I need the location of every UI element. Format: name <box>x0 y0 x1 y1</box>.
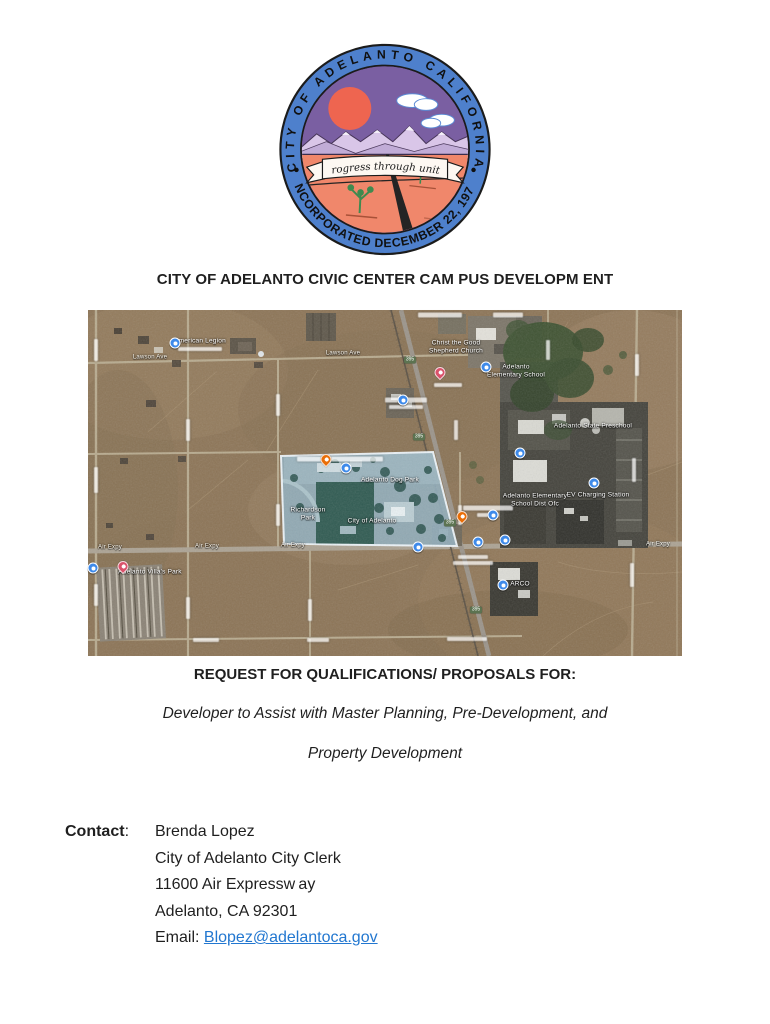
map-label: School Dist Ofc <box>511 501 559 508</box>
map-label: Richardson <box>291 507 326 514</box>
pink-map-pin <box>432 365 448 381</box>
blue-map-pin <box>88 563 99 574</box>
map-label-smudge <box>186 597 190 619</box>
map-label: American Legion <box>174 338 226 345</box>
map-label-smudge <box>630 563 634 587</box>
map-label-smudge <box>493 313 523 318</box>
contact-name: Brenda Lopez <box>155 819 378 846</box>
contact-email-row: Email: Blopez@adelantoca.gov <box>155 925 378 952</box>
contact-label: Contact: <box>65 819 155 952</box>
blue-map-pin <box>589 478 600 489</box>
map-label-smudge <box>193 638 219 642</box>
map-label-smudge <box>94 584 98 606</box>
map-label-smudge <box>447 637 487 641</box>
contact-block: Contact: Brenda Lopez City of Adelanto C… <box>65 819 378 952</box>
map-label: Lawson Ave <box>326 351 360 358</box>
map-label-smudge <box>276 504 280 526</box>
map-label: Adelanto Dog Park <box>361 477 419 484</box>
blue-map-pin <box>473 537 484 548</box>
subtitle-line-1: Developer to Assist with Master Planning… <box>0 705 770 723</box>
map-label-smudge <box>276 394 280 416</box>
map-label-smudge <box>546 340 550 360</box>
map-label-smudge <box>94 339 98 361</box>
request-heading: REQUEST FOR QUALIFICATIONS/ PROPOSALS FO… <box>0 666 770 683</box>
contact-email-link[interactable]: Blopez@adelantoca.gov <box>204 929 378 946</box>
map-label: City of Adelanto <box>348 518 397 525</box>
map-label: Adelanto <box>502 364 529 371</box>
blue-map-pin <box>398 395 409 406</box>
route-shield: 395 <box>444 520 456 527</box>
contact-title: City of Adelanto City Clerk <box>155 846 378 873</box>
contact-email-label: Email: <box>155 929 199 946</box>
contact-city: Adelanto, CA 92301 <box>155 899 378 926</box>
map-label-smudge <box>186 419 190 441</box>
map-label: EV Charging Station <box>567 492 630 499</box>
blue-map-pin <box>498 580 509 591</box>
map-label: Adelanto State Preschool <box>554 423 632 430</box>
blue-map-pin <box>481 362 492 373</box>
map-label: Shepherd Church <box>429 348 483 355</box>
map-label-smudge <box>632 458 636 482</box>
map-label-smudge <box>434 383 462 387</box>
blue-map-pin <box>170 338 181 349</box>
document-page: “Progress through unity” CITY OF ADELANT… <box>0 0 770 1024</box>
map-label-smudge <box>458 555 488 559</box>
map-label: Adelanto Elementary <box>503 493 567 500</box>
route-shield: 395 <box>404 357 416 364</box>
orange-map-pin <box>454 509 470 525</box>
orange-map-pin <box>318 452 334 468</box>
map-label-overlay: 395395395395American LegionLawson AveLaw… <box>88 310 682 656</box>
blue-map-pin <box>413 542 424 553</box>
map-label-smudge <box>463 506 513 511</box>
blue-map-pin <box>341 463 352 474</box>
map-label: Air Expy <box>195 544 219 551</box>
map-label-smudge <box>389 405 423 409</box>
map-label: Elementary School <box>487 372 545 379</box>
map-label: Air Expy <box>98 545 122 552</box>
map-label: Air Expy <box>646 542 670 549</box>
document-title: CITY OF ADELANTO CIVIC CENTER CAM PUS DE… <box>0 271 770 288</box>
map-label-smudge <box>297 457 383 462</box>
map-label-smudge <box>635 354 639 376</box>
route-shield: 395 <box>413 434 425 441</box>
blue-map-pin <box>515 448 526 459</box>
map-label-smudge <box>453 561 493 565</box>
site-aerial-map: 395395395395American LegionLawson AveLaw… <box>88 310 682 656</box>
map-label-smudge <box>94 467 98 493</box>
map-label: Christ the Good <box>432 340 481 347</box>
city-seal: “Progress through unity” CITY OF ADELANT… <box>278 42 493 257</box>
map-label-smudge <box>307 638 329 642</box>
map-label-smudge <box>418 313 462 318</box>
contact-values: Brenda Lopez City of Adelanto City Clerk… <box>155 819 378 952</box>
map-label: Adelanto Villa's Park <box>118 569 182 576</box>
map-label: Air Expy <box>281 543 305 550</box>
map-label-smudge <box>178 347 222 351</box>
route-shield: 395 <box>470 607 482 614</box>
subtitle-line-2: Property Development <box>0 745 770 763</box>
blue-map-pin <box>488 510 499 521</box>
seal-sun <box>328 87 371 130</box>
map-label-smudge <box>308 599 312 621</box>
map-label: Lawson Ave <box>133 355 167 362</box>
contact-street: 11600 Air Expressw ay <box>155 872 378 899</box>
map-label: ARCO <box>510 581 530 588</box>
blue-map-pin <box>500 535 511 546</box>
map-label: Park <box>301 515 315 522</box>
map-label-smudge <box>454 420 458 440</box>
